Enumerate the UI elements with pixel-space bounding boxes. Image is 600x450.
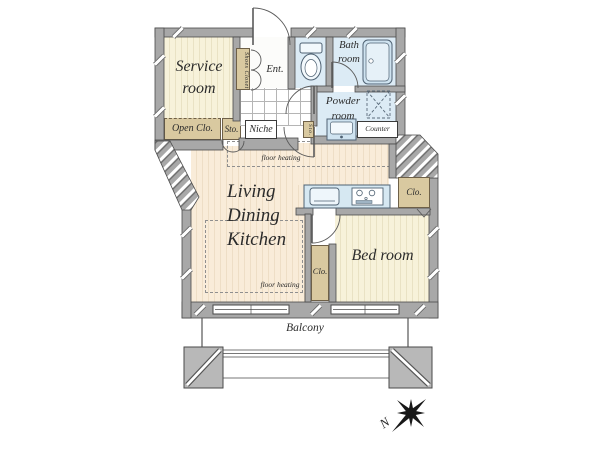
counter-label: Counter: [357, 125, 398, 134]
wall-toilet-left: [288, 37, 295, 89]
toilet-door: [286, 86, 314, 114]
kitchen-sink: [310, 188, 339, 205]
balcony-pillar-left: [184, 347, 223, 388]
bathtub-fixture: [363, 40, 392, 84]
powder-room-label: Powder room: [320, 94, 366, 124]
mid-closet-label: Clo.: [310, 267, 330, 277]
balcony-pillar-right: [389, 347, 432, 388]
toilet-fixture: [300, 43, 322, 80]
wall-bath-powder-a: [316, 86, 333, 92]
wall-top-left: [155, 28, 253, 37]
service-room-label: Service room: [164, 56, 234, 100]
kitchen-counter: [304, 185, 390, 208]
mini-storage-label: Sto.: [304, 123, 313, 137]
storage-label: Sto.: [221, 124, 242, 134]
shoes-closet-label: Shoes Closet: [237, 50, 249, 90]
entrance-door: [253, 8, 290, 45]
floor-heating-bottom-label: floor heating: [230, 281, 330, 290]
niche-label: Niche: [245, 124, 277, 136]
compass-rose-icon: [392, 399, 426, 432]
bedroom-label: Bed room: [340, 247, 425, 265]
balcony-label: Balcony: [275, 322, 335, 335]
wall-bedroom-b: [336, 208, 430, 215]
wall-left-upper: [155, 28, 164, 150]
wall-right-lower: [429, 178, 438, 318]
ldk-bedroom-door: [312, 215, 340, 243]
floorplan-canvas: Service room Living Dining Kitchen Bed r…: [0, 0, 600, 450]
wall-closet-col-right: [329, 244, 336, 302]
wall-diagonal-connector: [155, 141, 199, 210]
wall-right-upper: [396, 28, 405, 136]
wall-shoulder-pillar: [396, 135, 438, 178]
open-closet-label: Open Clo.: [164, 123, 221, 135]
bedroom-closet-label: Clo.: [398, 187, 430, 197]
wall-left-lower: [182, 200, 191, 318]
entrance-label: Ent.: [258, 64, 292, 76]
floor-heating-top-label: floor heating: [231, 154, 331, 163]
bath-room-label: Bath room: [331, 39, 367, 67]
ldk-label: Living Dining Kitchen: [227, 180, 307, 252]
stove: [352, 188, 383, 205]
washer-space: [367, 91, 390, 118]
